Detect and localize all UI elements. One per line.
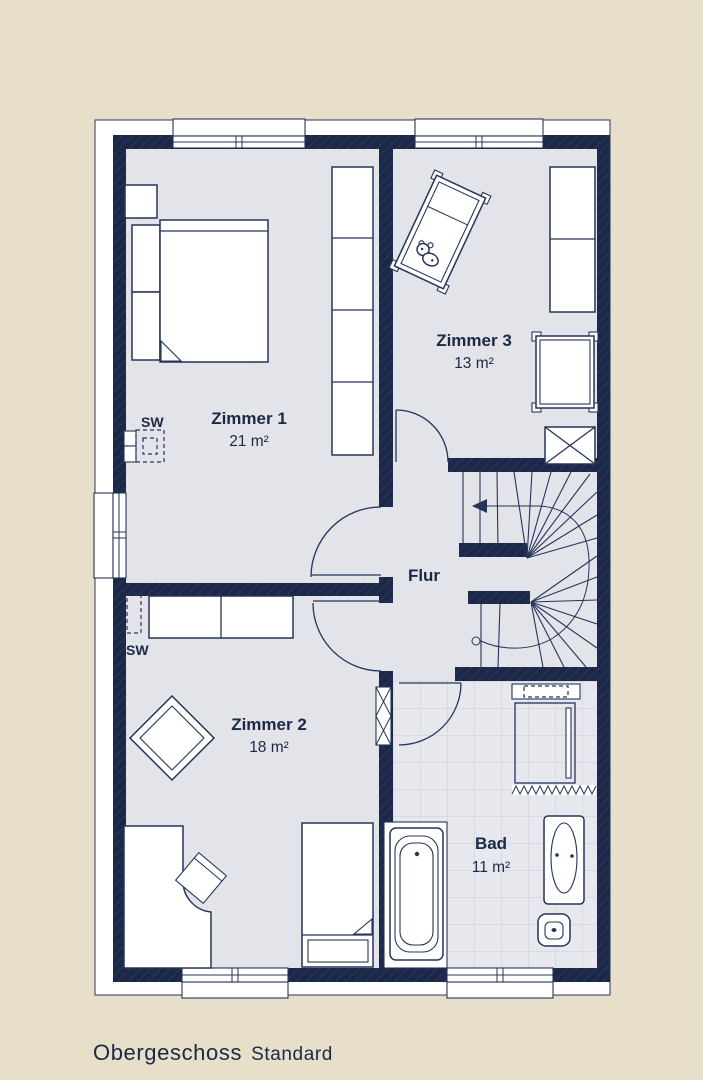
area-zimmer1: 21 m² (229, 433, 269, 450)
washbasin (544, 816, 584, 904)
window-bottom-bad (447, 968, 553, 998)
label-flur: Flur (408, 566, 440, 585)
stair-inner-wall-lower (468, 591, 530, 604)
radiator (512, 785, 596, 795)
bathtub-drain (415, 852, 419, 856)
window-top-zimmer1 (173, 119, 305, 148)
floor-plan: Zimmer 1 21 m² Zimmer 2 18 m² Zimmer 3 1… (0, 0, 703, 1080)
sw-label-zimmer1: SW (141, 414, 164, 430)
shower-glass-panel (566, 708, 571, 778)
void-shaft-x (545, 427, 595, 464)
wall-stairs-bad (455, 667, 610, 681)
area-bad: 11 m² (472, 859, 510, 876)
outer-wall-right (597, 135, 610, 982)
sw-label-zimmer2: SW (126, 642, 149, 658)
label-zimmer3: Zimmer 3 (436, 331, 512, 350)
plan-caption: ObergeschossStandard (93, 1040, 333, 1066)
bedside-table (132, 225, 160, 292)
window-bottom-zimmer2 (182, 968, 288, 998)
wardrobe-zimmer1 (332, 167, 373, 455)
label-zimmer1: Zimmer 1 (211, 409, 287, 428)
installation-shaft (376, 687, 391, 745)
double-bed (160, 220, 268, 362)
stair-inner-wall-upper (459, 543, 527, 557)
caption-title: Obergeschoss (93, 1040, 242, 1065)
window-left-zimmer1 (94, 493, 126, 578)
area-zimmer3: 13 m² (454, 355, 494, 372)
door-post-flur (379, 577, 393, 603)
label-bad: Bad (475, 834, 507, 853)
shelf-niche (512, 684, 580, 699)
toilet (538, 914, 570, 946)
floor-plan-page: Zimmer 1 21 m² Zimmer 2 18 m² Zimmer 3 1… (0, 0, 703, 1080)
nightstand (125, 185, 157, 218)
bedside-table (132, 292, 160, 360)
wall-zimmer1-zimmer3 (379, 148, 393, 507)
play-table (532, 332, 598, 412)
bathtub (384, 822, 447, 968)
wall-zimmer1-zimmer2 (126, 583, 379, 596)
window-top-zimmer3 (415, 119, 543, 148)
area-zimmer2: 18 m² (249, 739, 289, 756)
caption-subtitle: Standard (251, 1044, 333, 1065)
label-zimmer2: Zimmer 2 (231, 715, 307, 734)
